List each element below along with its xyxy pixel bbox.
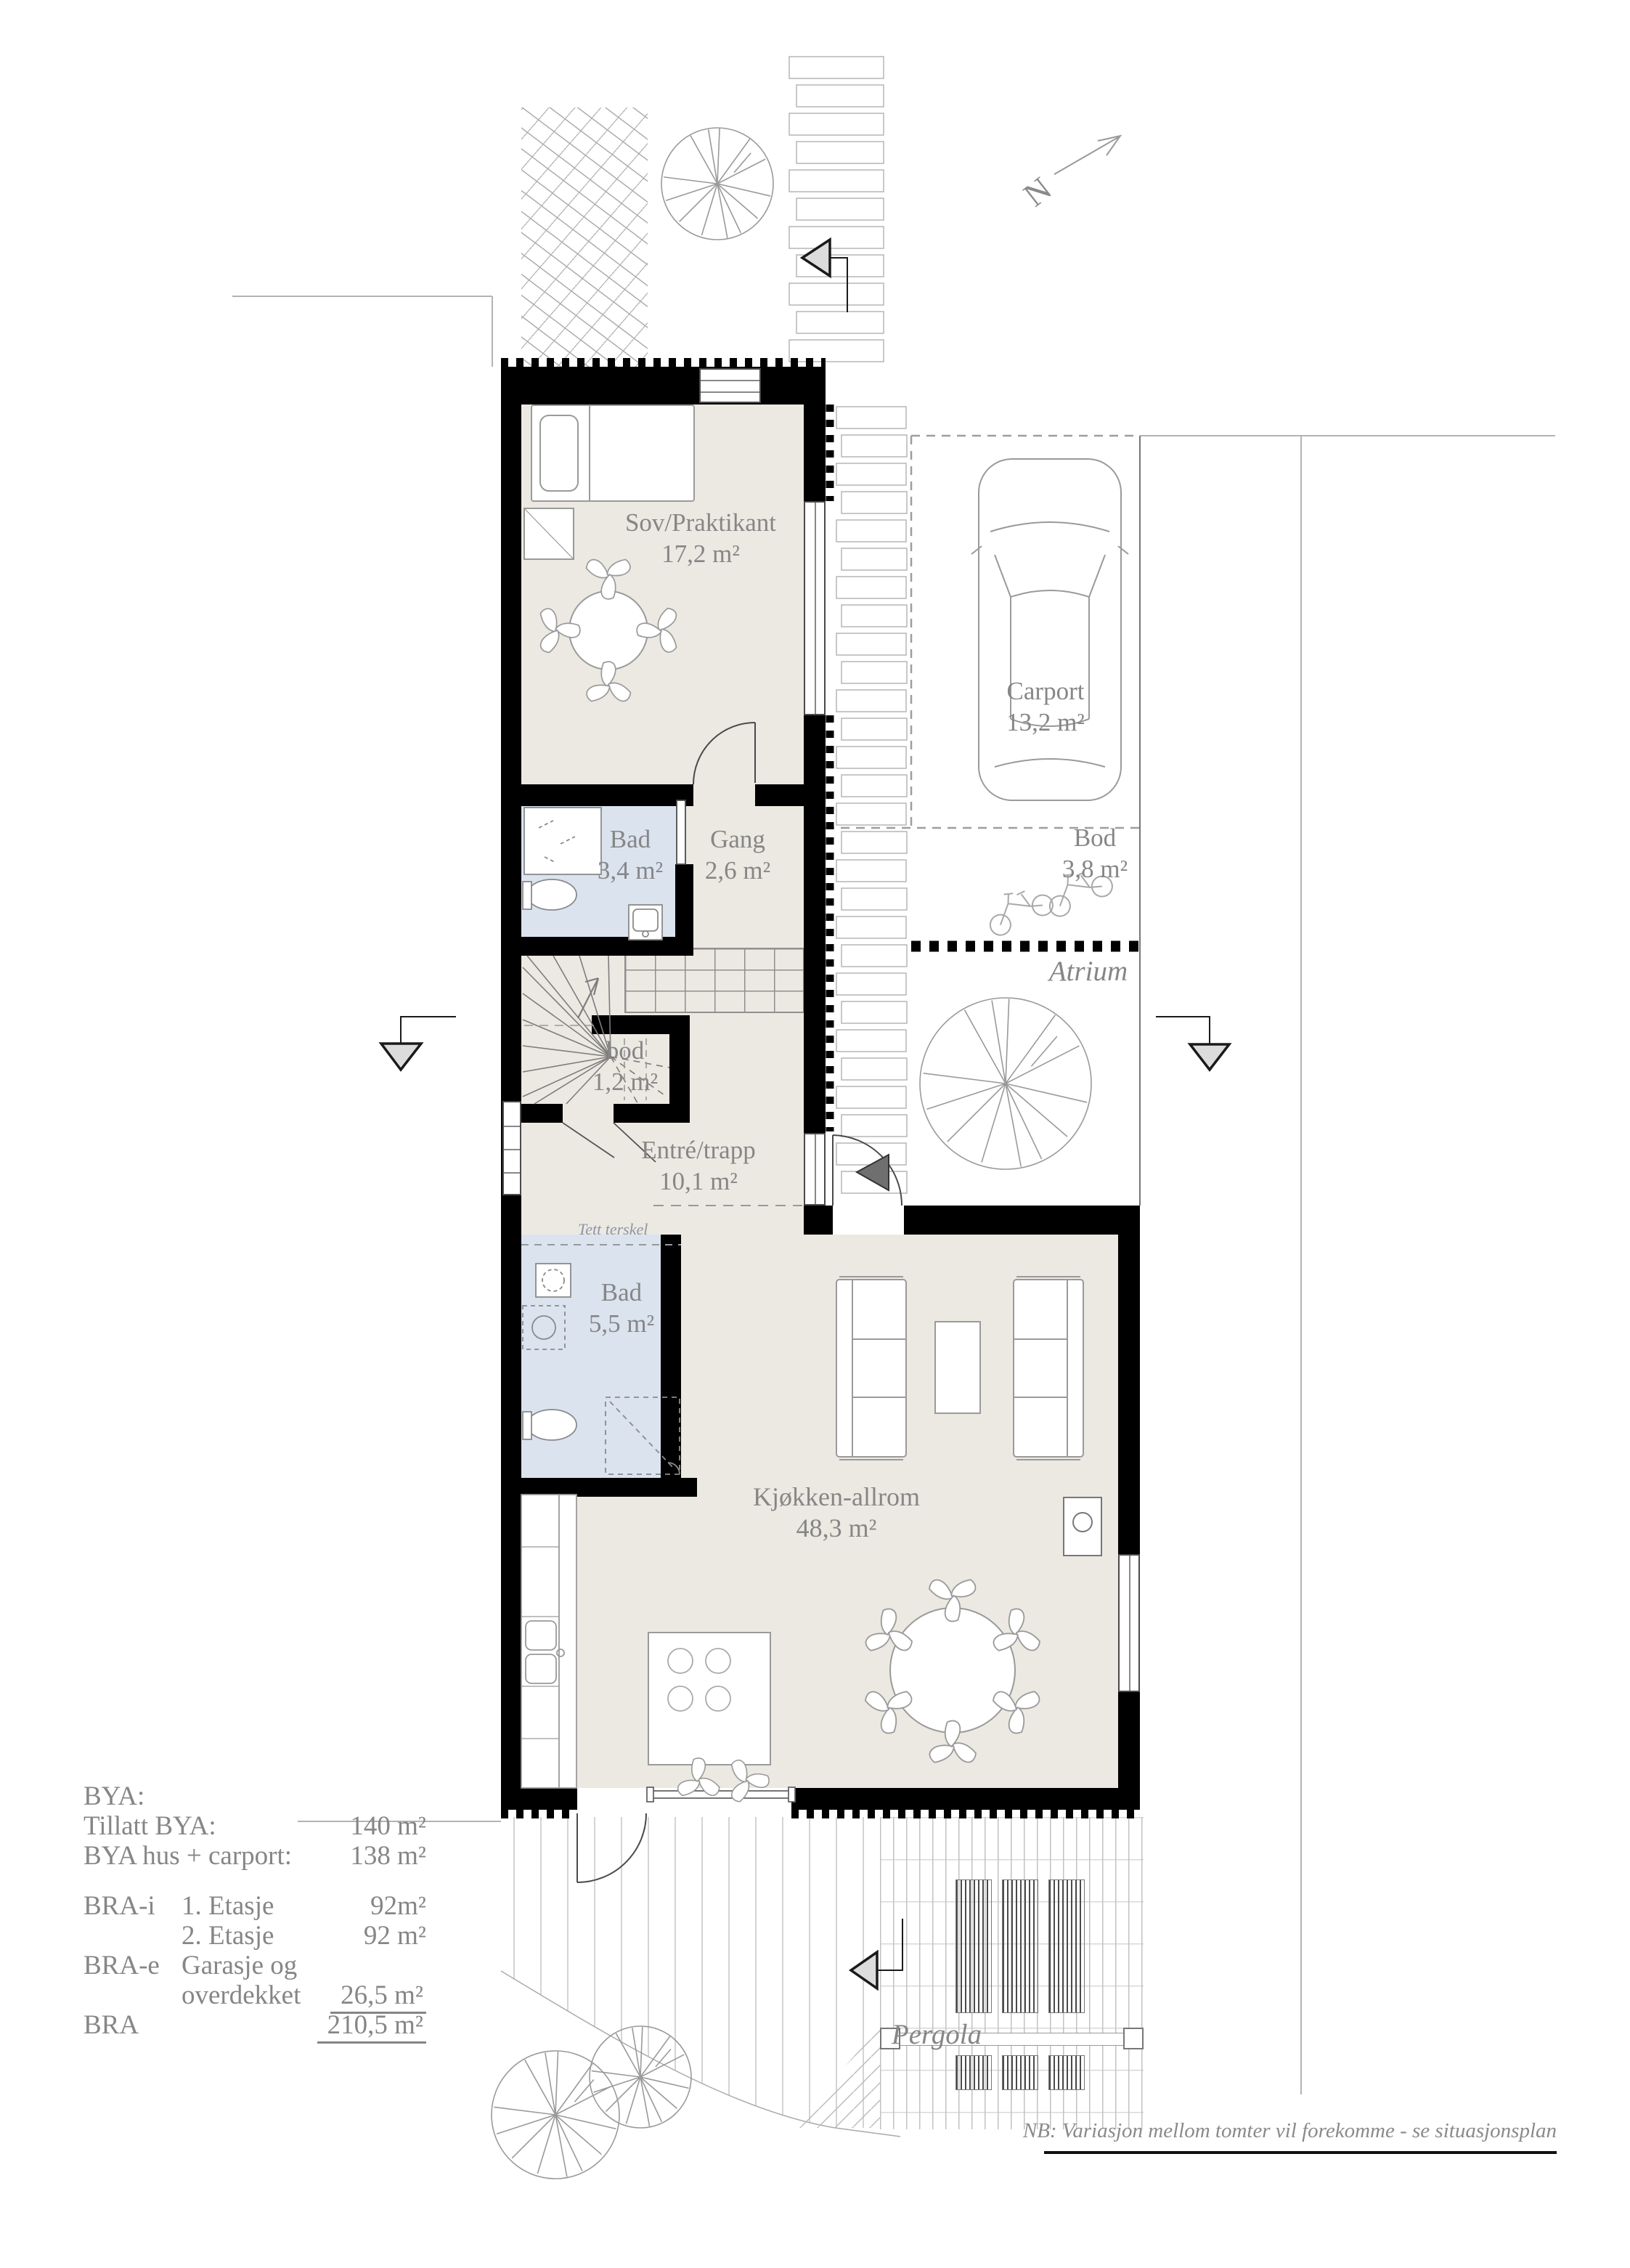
room-name: Bad <box>589 1277 654 1308</box>
terrace-deck <box>501 1817 900 2137</box>
room-name: Pergola <box>892 2019 982 2050</box>
room-area: 3,4 m² <box>598 855 663 886</box>
wall-bath2-bottom <box>501 1478 697 1497</box>
room-label-entre: Entré/trapp 10,1 m² <box>641 1134 755 1197</box>
table-row: BRA 210,5 m² <box>83 2009 426 2039</box>
wall-kitchen-top <box>904 1206 1140 1235</box>
table-row: BYA: <box>83 1781 426 1810</box>
wall-bed-bath-a <box>501 784 693 806</box>
wall-bod-bottom-r <box>614 1104 690 1123</box>
room-area: 1,2 m² <box>592 1066 658 1097</box>
bicycle <box>980 877 1056 938</box>
wall-left <box>501 405 521 1788</box>
room-name: Bod <box>1062 822 1128 853</box>
wall-kitchen-right-b <box>1118 1692 1140 1788</box>
wall-right-a <box>804 405 826 501</box>
slope-hatch <box>791 2026 880 2128</box>
pergola-furniture <box>955 1879 992 2013</box>
table-row: 2. Etasje 92 m² <box>83 1920 426 1950</box>
room-label-carport: Carport 13,2 m² <box>1006 675 1085 738</box>
threshold-note: Tett terskel <box>578 1220 648 1239</box>
footnote: NB: Variasjon mellom tomter vil forekomm… <box>1023 2119 1557 2143</box>
floor-bath-2 <box>521 1235 661 1478</box>
room-area: 5,5 m² <box>589 1308 654 1339</box>
access-arrow-bottom <box>851 1952 877 1988</box>
tree-bottom-2 <box>590 2026 691 2128</box>
area-summary-table: BYA: Tillatt BYA: 140 m² BYA hus + carpo… <box>83 1781 426 2039</box>
room-label-bod-inner: bod 1,2 m² <box>592 1035 658 1097</box>
room-label-gang: Gang 2,6 m² <box>705 824 770 886</box>
room-name: Sov/Praktikant <box>625 507 776 538</box>
room-name: Carport <box>1006 675 1085 707</box>
access-arrow-top <box>802 240 830 276</box>
carport-outline <box>826 436 1140 828</box>
table-row: BRA-i 1. Etasje 92m² <box>83 1890 426 1920</box>
table-row: BYA hus + carport: 138 m² <box>83 1840 426 1870</box>
stair-upper-flight <box>624 948 804 1013</box>
wall-bottom-a <box>501 1788 577 1810</box>
pergola-furniture <box>1002 2055 1038 2090</box>
room-name: Entré/trapp <box>641 1134 755 1166</box>
room-area: 17,2 m² <box>625 538 776 569</box>
wall-top <box>501 367 826 405</box>
tree-bottom-1 <box>492 2051 619 2179</box>
access-arrow-right <box>1190 1044 1229 1070</box>
room-label-bad2: Bad 5,5 m² <box>589 1277 654 1339</box>
wall-right-b <box>804 715 826 1133</box>
gravel-strip <box>521 107 648 367</box>
tree-top <box>661 128 773 240</box>
room-label-kjokken: Kjøkken-allrom 48,3 m² <box>753 1481 920 1544</box>
room-name: Kjøkken-allrom <box>753 1481 920 1513</box>
wall-bed-bath-b <box>755 784 804 806</box>
room-name: Gang <box>705 824 770 855</box>
room-label-sov: Sov/Praktikant 17,2 m² <box>625 507 776 569</box>
floor-main-wing <box>521 405 804 1788</box>
wall-under-bath1 <box>501 937 693 956</box>
wall-kitchen-right-a <box>1118 1235 1140 1554</box>
wall-entry-corner <box>804 1206 833 1235</box>
car <box>971 459 1128 800</box>
room-name: bod <box>592 1035 658 1066</box>
pergola-furniture <box>1048 2055 1085 2090</box>
north-arrow: N <box>1016 136 1120 214</box>
room-area: 13,2 m² <box>1006 707 1085 738</box>
sliding-door <box>647 1787 795 1802</box>
border-line <box>1044 2151 1557 2154</box>
pergola-furniture <box>1002 1879 1038 2013</box>
table-row: Tillatt BYA: 140 m² <box>83 1810 426 1840</box>
table-row: overdekket 26,5 m² <box>83 1980 426 2009</box>
wall-bath1-gang <box>675 864 693 937</box>
entry-door-arrow <box>857 1155 889 1190</box>
table-row: BRA-e Garasje og <box>83 1950 426 1980</box>
wall-bath2-right <box>661 1235 681 1478</box>
room-name: Bad <box>598 824 663 855</box>
room-label-bod-outer: Bod 3,8 m² <box>1062 822 1128 885</box>
room-area: 48,3 m² <box>753 1513 920 1544</box>
window-top-wall <box>699 368 761 403</box>
room-label-pergola: Pergola <box>892 2019 982 2050</box>
room-label-bad1: Bad 3,4 m² <box>598 824 663 886</box>
pergola-furniture <box>1048 1879 1085 2013</box>
wall-bottom-b <box>791 1788 1140 1810</box>
window-entry-sidelight <box>804 1133 826 1206</box>
floor-plan: N Sov/Praktikant 17,2 m² Bad 3,4 m² Gang… <box>0 0 1630 2268</box>
window-bedroom <box>804 501 826 715</box>
pergola-furniture <box>955 2055 992 2090</box>
window-entry-left <box>502 1101 521 1195</box>
tree-atrium <box>920 998 1091 1169</box>
room-area: 10,1 m² <box>641 1166 755 1197</box>
window-kitchen <box>1118 1554 1140 1692</box>
access-arrow-left <box>381 1044 421 1070</box>
room-name: Atrium <box>1049 956 1128 987</box>
room-area: 3,8 m² <box>1062 853 1128 885</box>
pergola-post <box>1123 2028 1144 2049</box>
room-label-atrium: Atrium <box>1049 956 1128 987</box>
room-area: 2,6 m² <box>705 855 770 886</box>
north-letter: N <box>1016 170 1059 214</box>
